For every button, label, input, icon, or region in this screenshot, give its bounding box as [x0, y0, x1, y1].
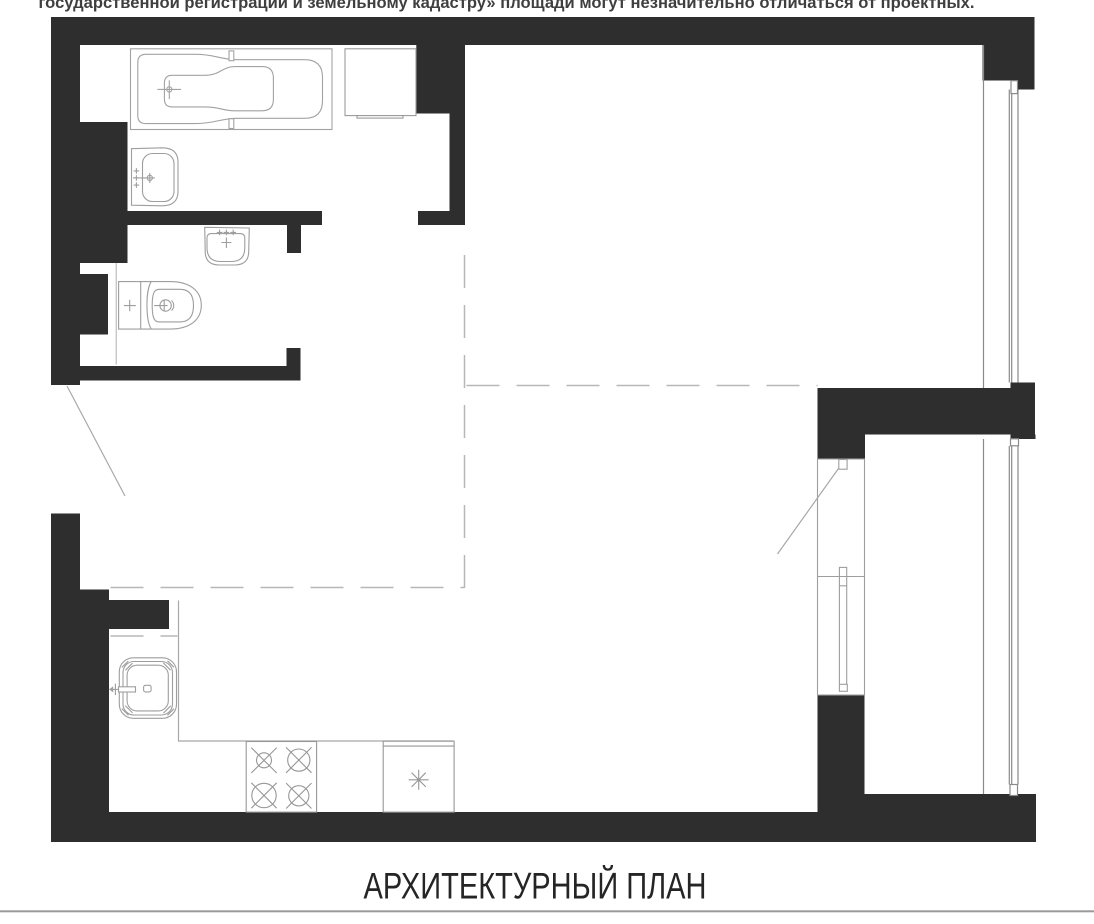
svg-text:государственной регистрации и: государственной регистрации и земельному…	[39, 0, 975, 12]
svg-text:АРХИТЕКТУРНЫЙ ПЛАН: АРХИТЕКТУРНЫЙ ПЛАН	[364, 865, 707, 907]
